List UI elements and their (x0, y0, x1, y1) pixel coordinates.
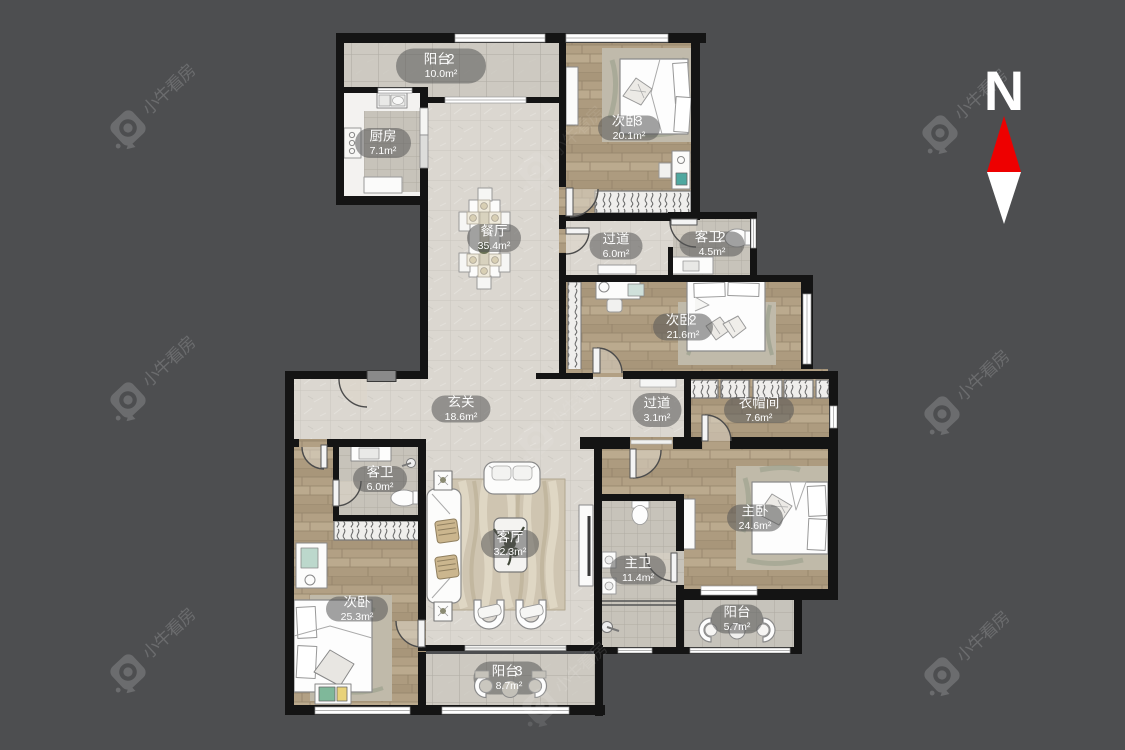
svg-text:24.6m²: 24.6m² (739, 520, 772, 532)
svg-text:7.1m²: 7.1m² (370, 145, 397, 157)
svg-text:3: 3 (635, 114, 643, 129)
svg-text:N: N (984, 59, 1024, 122)
svg-text:6.0m²: 6.0m² (367, 481, 394, 493)
svg-text:7.6m²: 7.6m² (746, 412, 773, 424)
svg-text:32.3m²: 32.3m² (494, 546, 527, 558)
svg-text:5.7m²: 5.7m² (724, 621, 751, 633)
svg-text:25.3m²: 25.3m² (341, 611, 374, 623)
svg-text:18.6m²: 18.6m² (445, 411, 478, 423)
svg-text:8.7m²: 8.7m² (496, 680, 523, 692)
svg-text:2: 2 (689, 313, 697, 328)
svg-text:3: 3 (515, 664, 523, 679)
svg-text:20.1m²: 20.1m² (613, 130, 646, 142)
svg-text:10.0m²: 10.0m² (425, 68, 458, 80)
svg-text:35.4m²: 35.4m² (478, 240, 511, 252)
svg-text:4.5m²: 4.5m² (699, 246, 726, 258)
svg-text:2: 2 (447, 52, 455, 67)
svg-text:21.6m²: 21.6m² (667, 329, 700, 341)
svg-text:11.4m²: 11.4m² (622, 572, 654, 584)
svg-text:2: 2 (718, 230, 726, 245)
svg-text:6.0m²: 6.0m² (603, 248, 630, 260)
svg-text:3.1m²: 3.1m² (644, 412, 671, 424)
